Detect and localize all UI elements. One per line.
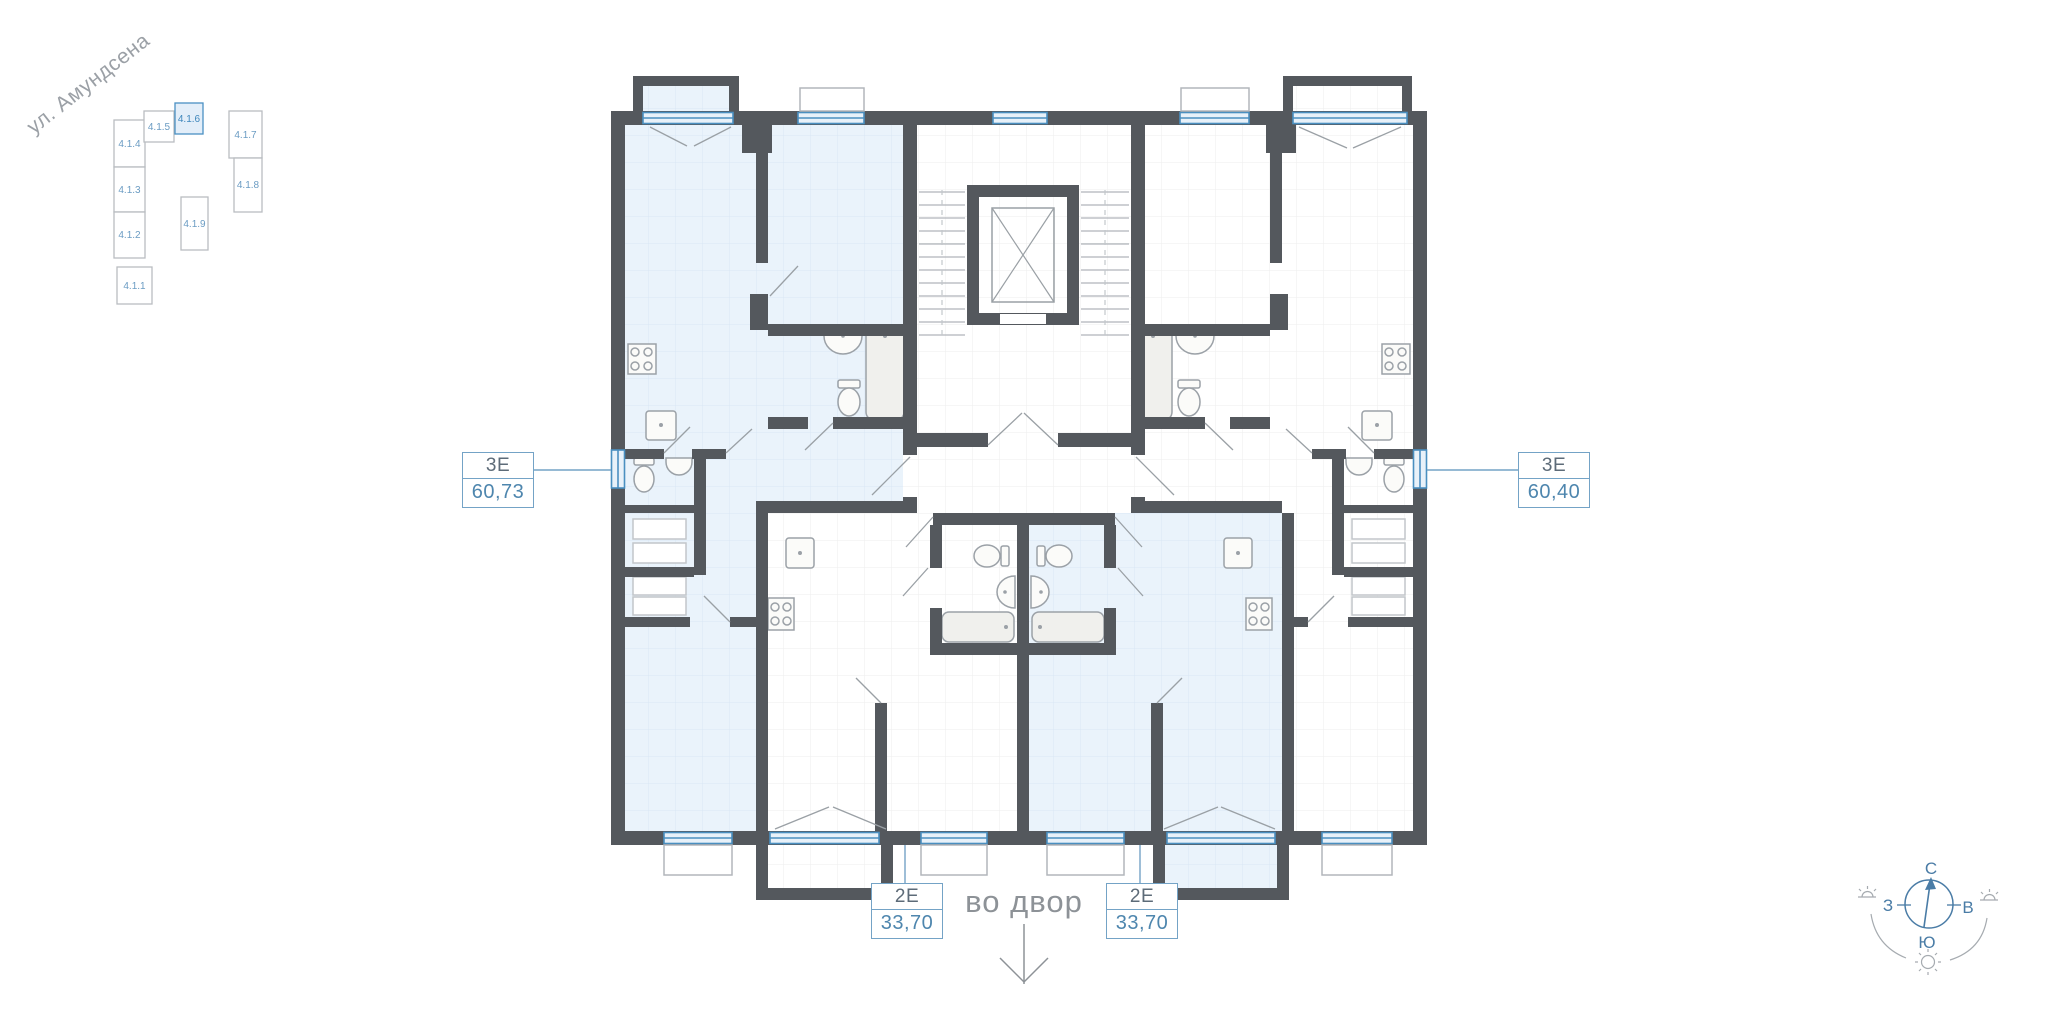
sun-path-arc — [1950, 918, 1987, 960]
stove-icon — [628, 344, 656, 374]
sunrise-icon — [1980, 889, 1998, 900]
apartment-area: 60,40 — [1519, 479, 1589, 507]
window — [1293, 113, 1407, 124]
apartment-label-bottom-left-2e[interactable]: 2Е 33,70 — [871, 883, 943, 939]
stove-icon — [768, 598, 794, 630]
minimap-building-label: 4.1.2 — [118, 230, 141, 241]
floor-plan-drawing: 4.1.4 4.1.5 4.1.6 4.1.7 4.1.8 4.1.3 4.1.… — [0, 0, 2048, 1024]
apartment-type: 3Е — [463, 453, 533, 479]
toilet-icon — [974, 545, 1009, 567]
minimap: 4.1.4 4.1.5 4.1.6 4.1.7 4.1.8 4.1.3 4.1.… — [114, 103, 262, 304]
bathtub-icon — [866, 328, 904, 420]
minimap-building-label: 4.1.3 — [118, 185, 141, 196]
window — [1047, 833, 1124, 844]
compass-west-label: З — [1883, 896, 1893, 915]
bathtub-icon — [1032, 612, 1104, 642]
compass-needle-head — [1925, 877, 1936, 890]
stove-icon — [1246, 598, 1272, 630]
courtyard-arrow — [1000, 924, 1048, 984]
window — [612, 450, 625, 488]
apartment-area: 60,73 — [463, 479, 533, 507]
washing-machine-icon — [1362, 411, 1392, 440]
apartment-label-bottom-right-2e[interactable]: 2Е 33,70 — [1106, 883, 1178, 939]
compass-needle — [1924, 884, 1930, 927]
sunrise-icon — [1858, 886, 1876, 897]
toilet-icon — [1178, 380, 1200, 416]
toilet-icon — [1037, 545, 1072, 567]
bathtub-icon — [942, 612, 1014, 642]
floor-plan-page: 4.1.4 4.1.5 4.1.6 4.1.7 4.1.8 4.1.3 4.1.… — [0, 0, 2048, 1024]
toilet-icon — [634, 458, 654, 492]
minimap-building-label: 4.1.8 — [237, 180, 260, 191]
window — [770, 833, 879, 844]
apartment-area: 33,70 — [872, 910, 942, 938]
washing-machine-icon — [646, 411, 676, 440]
apartment-type: 3Е — [1519, 453, 1589, 479]
kitchen-sink-icon — [1224, 538, 1252, 568]
minimap-building-label: 4.1.6 — [178, 114, 201, 125]
window — [798, 113, 864, 124]
apartment-type: 2Е — [1107, 884, 1177, 910]
window — [1180, 113, 1249, 124]
sun-path-arc — [1871, 914, 1906, 958]
window — [643, 113, 733, 124]
window — [993, 113, 1047, 124]
window — [664, 833, 732, 844]
apartment-area: 33,70 — [1107, 910, 1177, 938]
stove-icon — [1382, 344, 1410, 374]
courtyard-label: во двор — [950, 884, 1098, 920]
minimap-building-label: 4.1.5 — [148, 122, 171, 133]
apartment-type: 2Е — [872, 884, 942, 910]
kitchen-sink-icon — [786, 538, 814, 568]
toilet-icon — [1384, 458, 1404, 492]
compass-north-label: С — [1925, 859, 1937, 878]
window — [921, 833, 987, 844]
sun-icon — [1915, 949, 1941, 975]
apartment-label-left-3e[interactable]: 3Е 60,73 — [462, 452, 534, 508]
window — [1167, 833, 1275, 844]
compass-east-label: В — [1962, 898, 1973, 917]
apartment-label-right-3e[interactable]: 3Е 60,40 — [1518, 452, 1590, 508]
minimap-building-label: 4.1.7 — [234, 130, 257, 141]
minimap-building-label: 4.1.4 — [118, 139, 141, 150]
compass: С Ю З В — [1858, 859, 1998, 975]
minimap-building-label: 4.1.1 — [123, 281, 146, 292]
window — [1322, 833, 1392, 844]
minimap-building-label: 4.1.9 — [183, 219, 206, 230]
toilet-icon — [838, 380, 860, 416]
window — [1414, 450, 1427, 488]
compass-south-label: Ю — [1918, 933, 1935, 952]
